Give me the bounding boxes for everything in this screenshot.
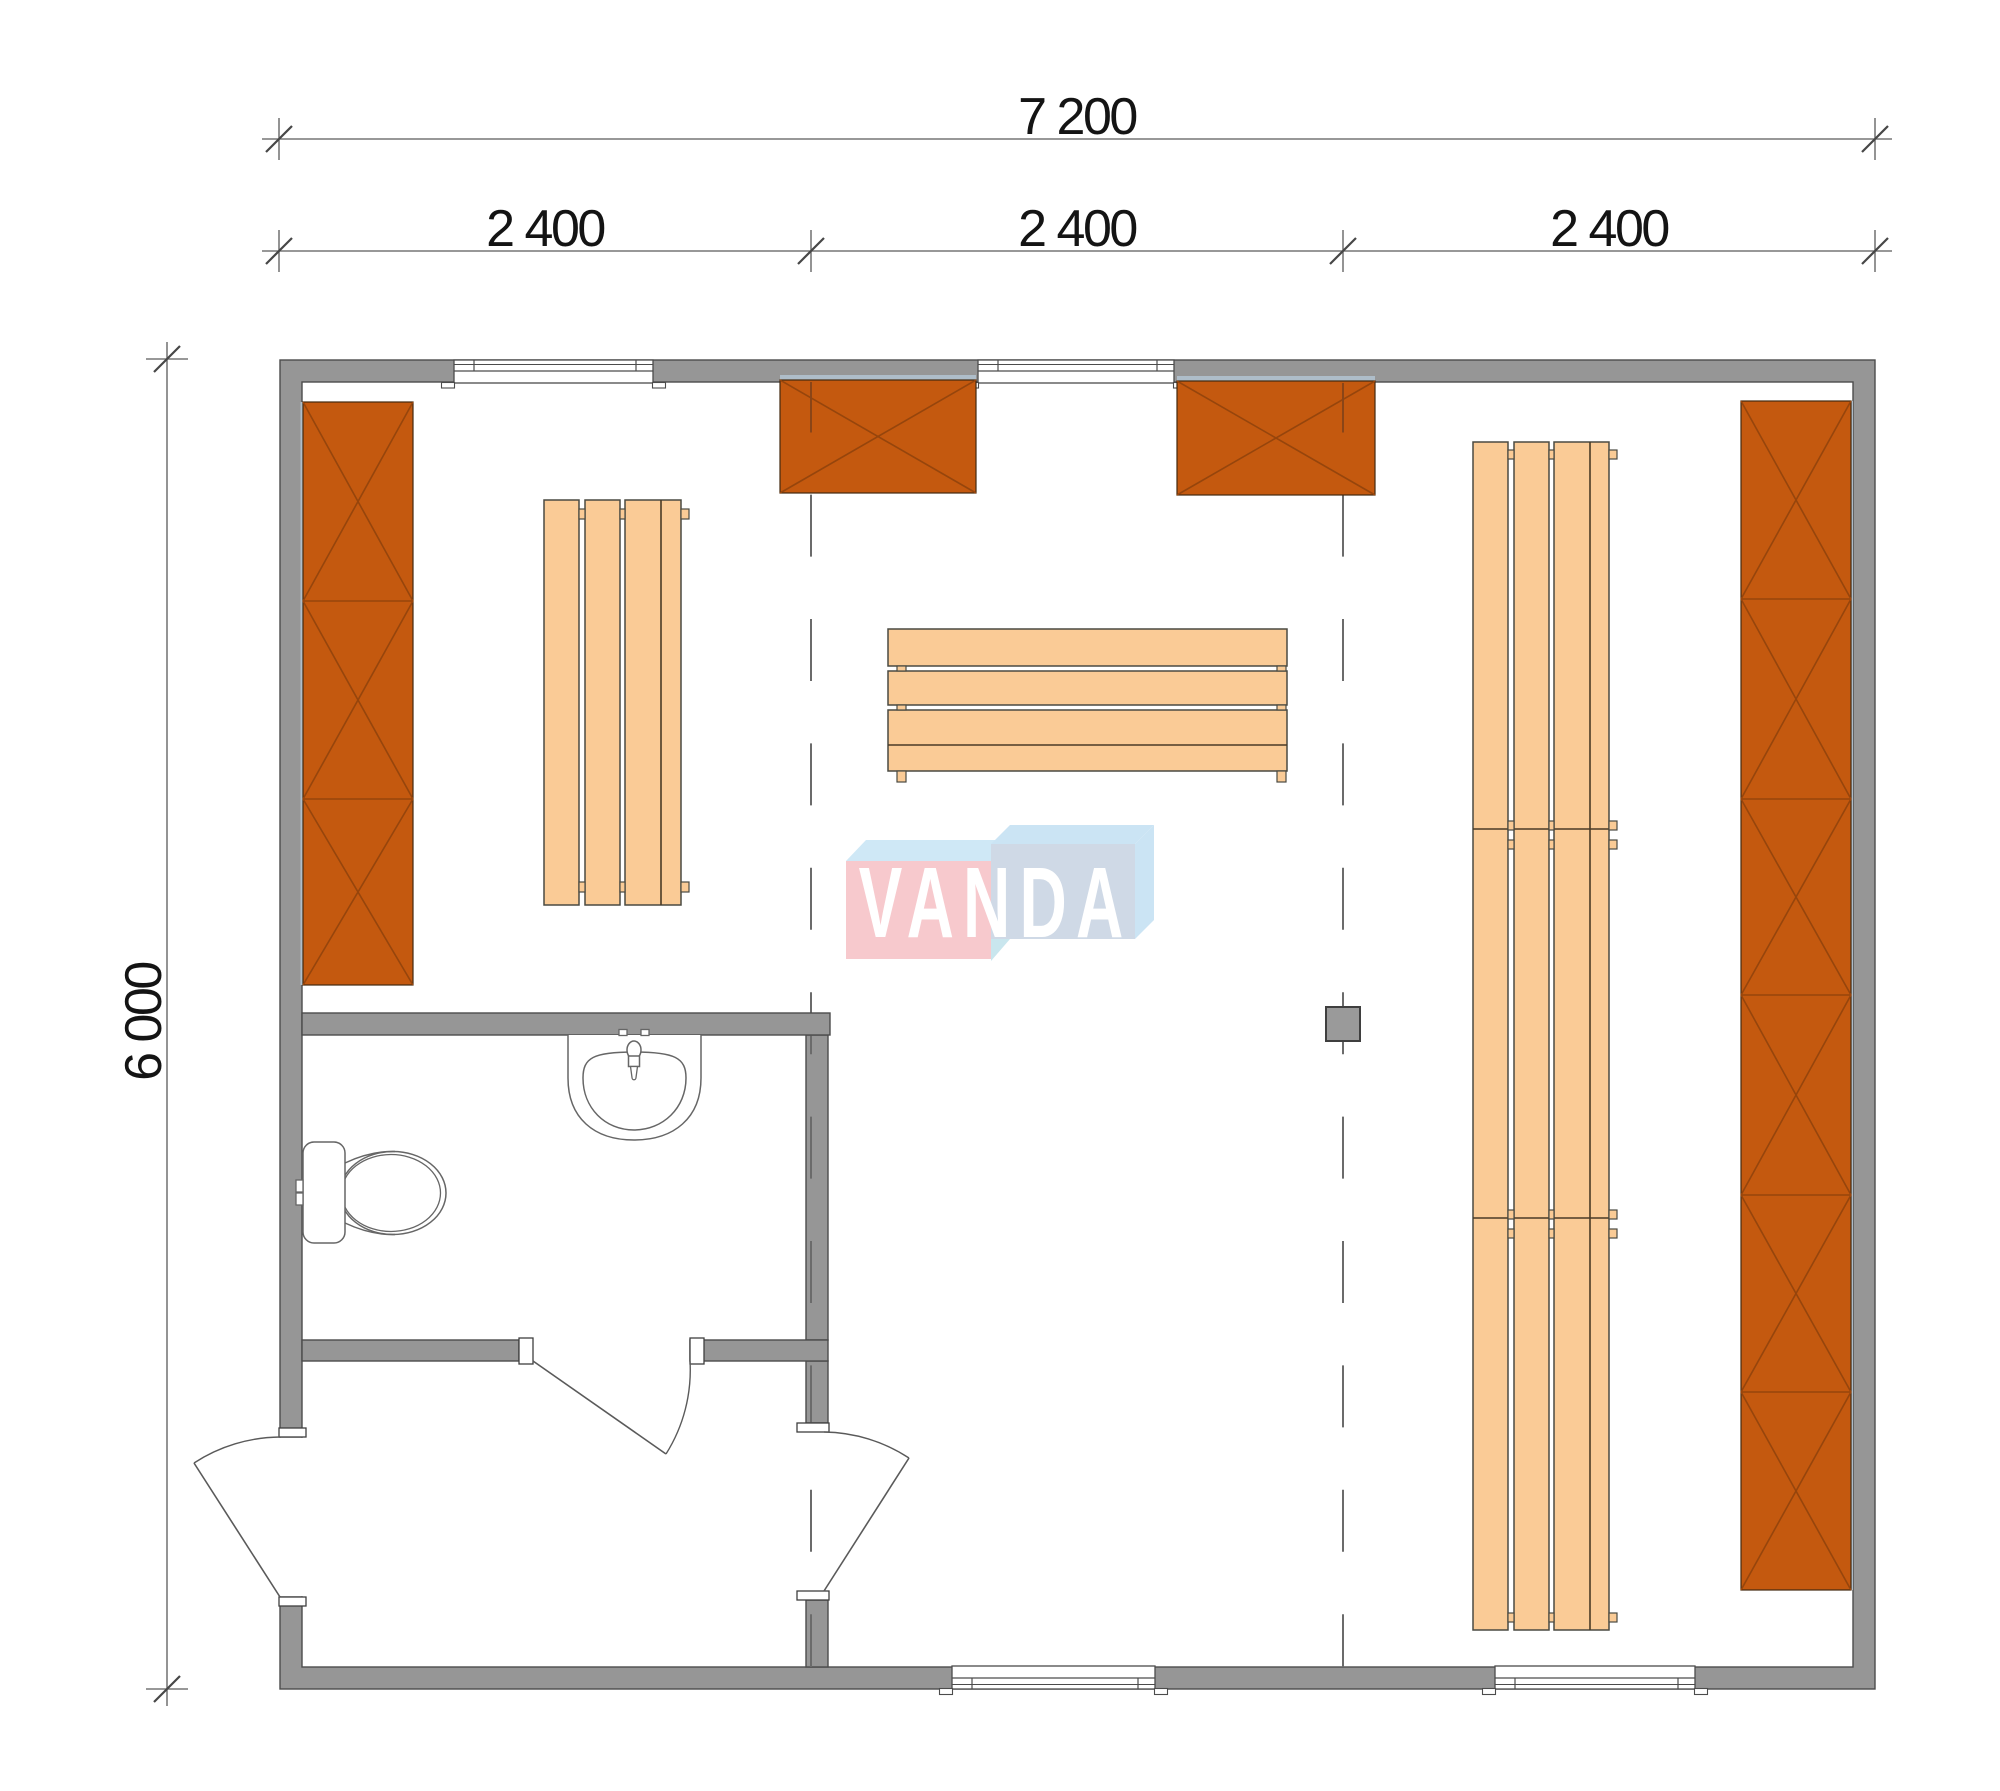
svg-text:2 400: 2 400 (1018, 200, 1136, 258)
svg-text:VANDA: VANDA (859, 846, 1133, 958)
svg-text:7 200: 7 200 (1018, 88, 1136, 146)
svg-text:6 000: 6 000 (115, 963, 173, 1081)
svg-text:2 400: 2 400 (486, 200, 604, 258)
svg-text:2 400: 2 400 (1550, 200, 1668, 258)
